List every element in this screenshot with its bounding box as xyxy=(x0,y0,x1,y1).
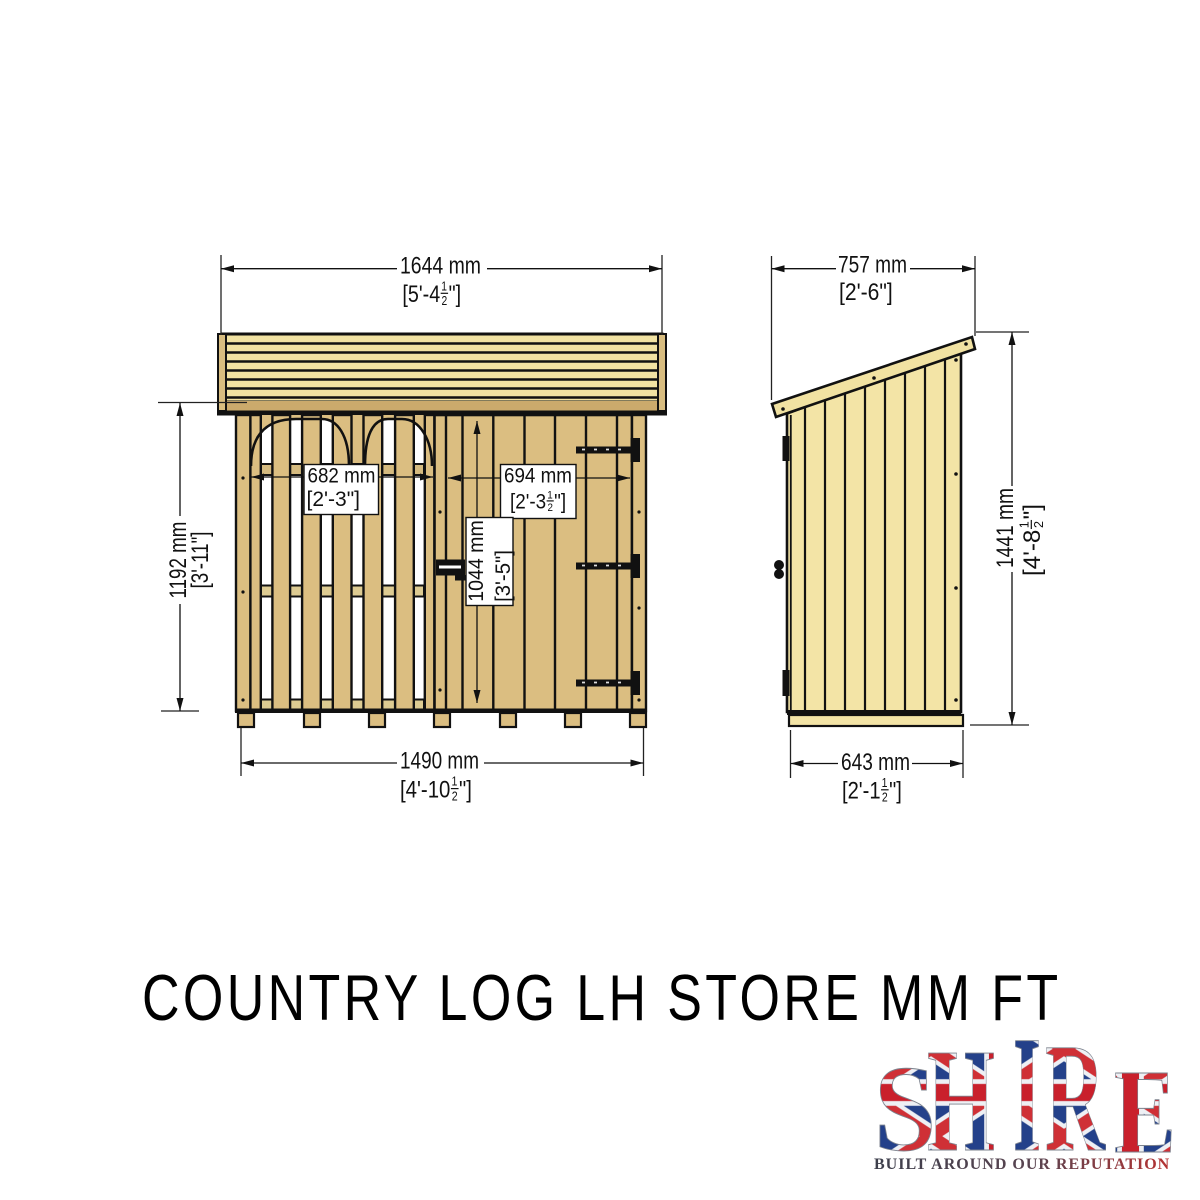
svg-text:[3'-5"]: [3'-5"] xyxy=(492,550,515,602)
svg-text:757 mm: 757 mm xyxy=(838,250,907,278)
svg-text:1: 1 xyxy=(882,777,888,790)
svg-text:2: 2 xyxy=(452,790,458,804)
svg-text:1644 mm: 1644 mm xyxy=(400,252,481,279)
svg-text:[3'-11"]: [3'-11"] xyxy=(186,532,214,589)
svg-text:"]: "] xyxy=(889,777,902,804)
svg-text:"]: "] xyxy=(459,776,472,803)
svg-text:1: 1 xyxy=(441,281,447,294)
svg-text:2: 2 xyxy=(882,792,888,805)
svg-text:[5'-4: [5'-4 xyxy=(402,280,440,307)
svg-text:[2'-1: [2'-1 xyxy=(842,777,881,804)
svg-text:2: 2 xyxy=(442,295,448,308)
svg-text:"]: "] xyxy=(554,491,566,514)
svg-text:"]: "] xyxy=(1019,504,1046,519)
svg-text:"]: "] xyxy=(449,280,461,307)
svg-text:BUILT AROUND OUR REPUTATION: BUILT AROUND OUR REPUTATION xyxy=(874,1156,1170,1173)
svg-text:1044 mm: 1044 mm xyxy=(465,520,488,602)
svg-text:[2'-6"]: [2'-6"] xyxy=(839,279,893,306)
svg-text:[4'-8: [4'-8 xyxy=(1019,530,1046,576)
svg-text:2: 2 xyxy=(1032,521,1046,528)
svg-text:1: 1 xyxy=(452,775,458,789)
svg-text:2: 2 xyxy=(548,503,554,515)
svg-text:643 mm: 643 mm xyxy=(841,748,910,776)
svg-text:694 mm: 694 mm xyxy=(504,465,572,488)
svg-text:[2'-3: [2'-3 xyxy=(510,491,546,514)
svg-text:COUNTRY LOG LH STORE MM FT: COUNTRY LOG LH STORE MM FT xyxy=(142,963,1061,1035)
svg-text:[2'-3"]: [2'-3"] xyxy=(307,488,360,511)
svg-text:682 mm: 682 mm xyxy=(308,465,376,488)
svg-text:1441 mm: 1441 mm xyxy=(991,488,1019,568)
svg-text:[4'-10: [4'-10 xyxy=(400,776,450,803)
svg-text:1: 1 xyxy=(1017,521,1031,528)
svg-text:1: 1 xyxy=(547,490,553,502)
svg-text:1490 mm: 1490 mm xyxy=(400,747,479,775)
